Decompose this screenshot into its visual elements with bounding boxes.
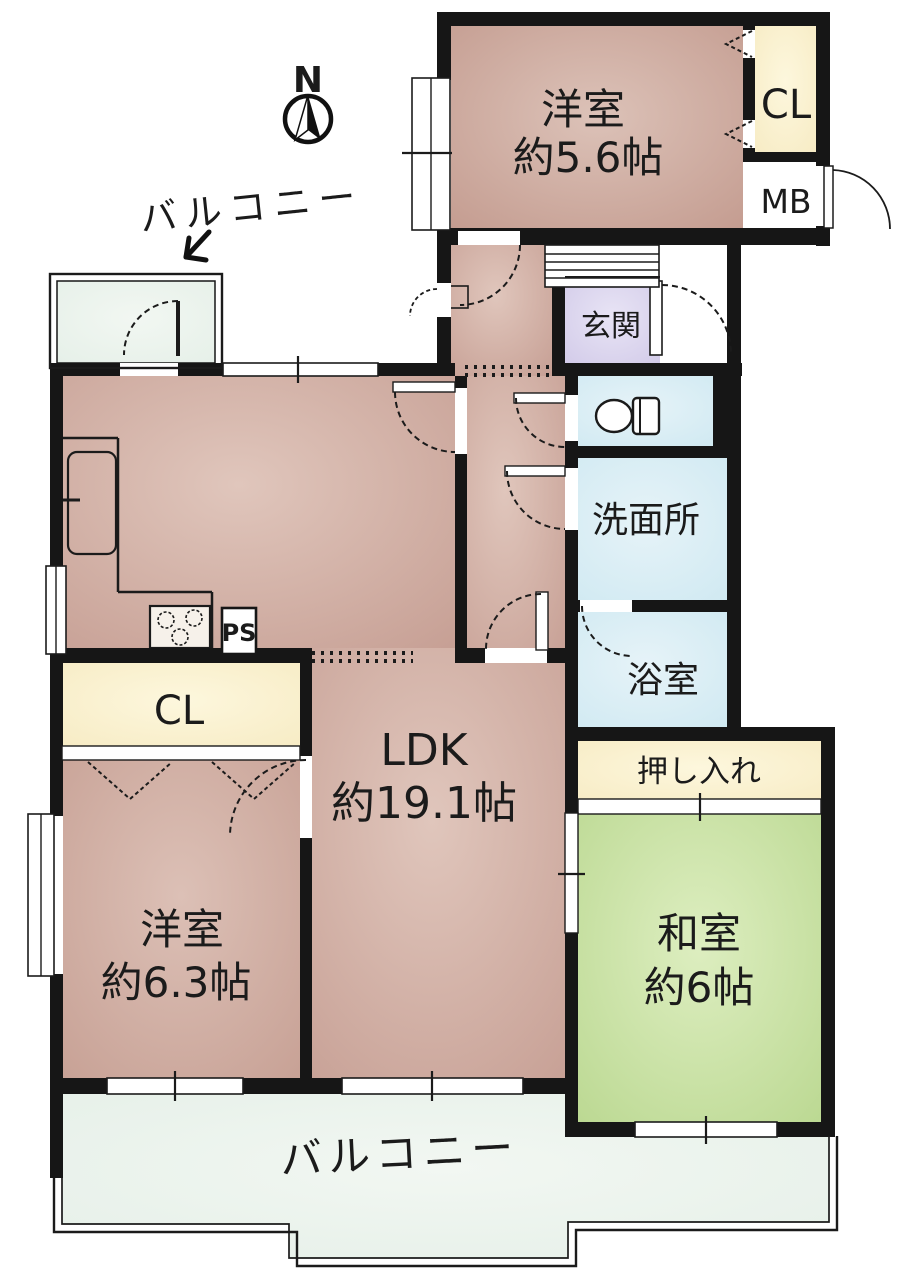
- stove-icon: [150, 606, 210, 648]
- bedroom-left-name: 洋室: [140, 905, 224, 954]
- entrance-label: 玄関: [581, 309, 641, 344]
- compass-label: N: [293, 60, 323, 101]
- closet-top-label: CL: [761, 82, 812, 128]
- ldk-size: 約19.1帖: [331, 778, 517, 829]
- door-arc-entrance: [662, 285, 731, 354]
- floor-plan: N バルコニー 洋室 約5.6帖 CL MB 玄関 洗面所 浴室 押し入れ 和室…: [0, 0, 909, 1280]
- entrance-steps: [545, 245, 660, 287]
- japanese-room-name: 和室: [657, 909, 741, 958]
- bedroom-top-name: 洋室: [541, 85, 625, 134]
- window-bedroom-left: [28, 814, 54, 976]
- door-leaf-living: [536, 592, 548, 650]
- door-leaf-meter-box: [824, 166, 833, 228]
- window-bedroom-top-left: [402, 78, 452, 230]
- closet-left-track: [62, 746, 300, 760]
- meter-box-label: MB: [760, 182, 811, 221]
- bedroom-left-size: 約6.3帖: [101, 958, 252, 1007]
- window-kitchen-left: [46, 566, 66, 654]
- closet-left-label: CL: [154, 688, 205, 734]
- compass-icon: N: [285, 60, 331, 142]
- balcony-top-label: バルコニー: [138, 174, 366, 240]
- bathroom-label: 浴室: [627, 660, 699, 701]
- balcony-arrow-icon: [186, 232, 209, 260]
- hall-window-arc: [410, 289, 437, 316]
- door-leaf-dining: [393, 382, 455, 392]
- door-leaf-toilet: [514, 393, 565, 403]
- door-arc-meter-box: [833, 170, 890, 229]
- balcony-top-left-floor: [57, 281, 215, 363]
- washroom-label: 洗面所: [592, 500, 700, 541]
- room-living: [312, 648, 578, 1078]
- ldk-name: LDK: [380, 725, 468, 776]
- door-leaf-entrance: [650, 281, 662, 355]
- bedroom-top-size: 約5.6帖: [513, 133, 664, 182]
- door-leaf-washroom: [505, 466, 565, 476]
- japanese-room-size: 約6帖: [644, 963, 755, 1012]
- room-dining-kitchen: [62, 376, 455, 648]
- pipe-space-label: PS: [222, 619, 257, 647]
- room-japanese: [578, 802, 821, 1122]
- oshiire-label: 押し入れ: [637, 754, 761, 790]
